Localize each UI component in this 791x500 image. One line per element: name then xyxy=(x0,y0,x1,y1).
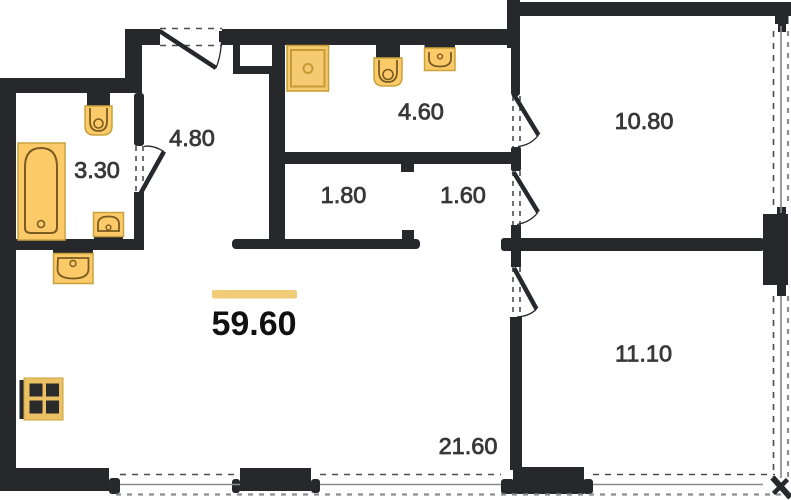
svg-text:59.60: 59.60 xyxy=(211,305,296,343)
svg-text:11.10: 11.10 xyxy=(615,341,672,367)
svg-text:1.60: 1.60 xyxy=(440,182,486,208)
svg-text:4.80: 4.80 xyxy=(169,125,215,151)
svg-text:4.60: 4.60 xyxy=(398,99,444,125)
svg-text:1.80: 1.80 xyxy=(321,182,367,208)
svg-text:3.30: 3.30 xyxy=(74,157,120,183)
svg-text:21.60: 21.60 xyxy=(439,433,498,459)
svg-text:10.80: 10.80 xyxy=(615,108,674,134)
